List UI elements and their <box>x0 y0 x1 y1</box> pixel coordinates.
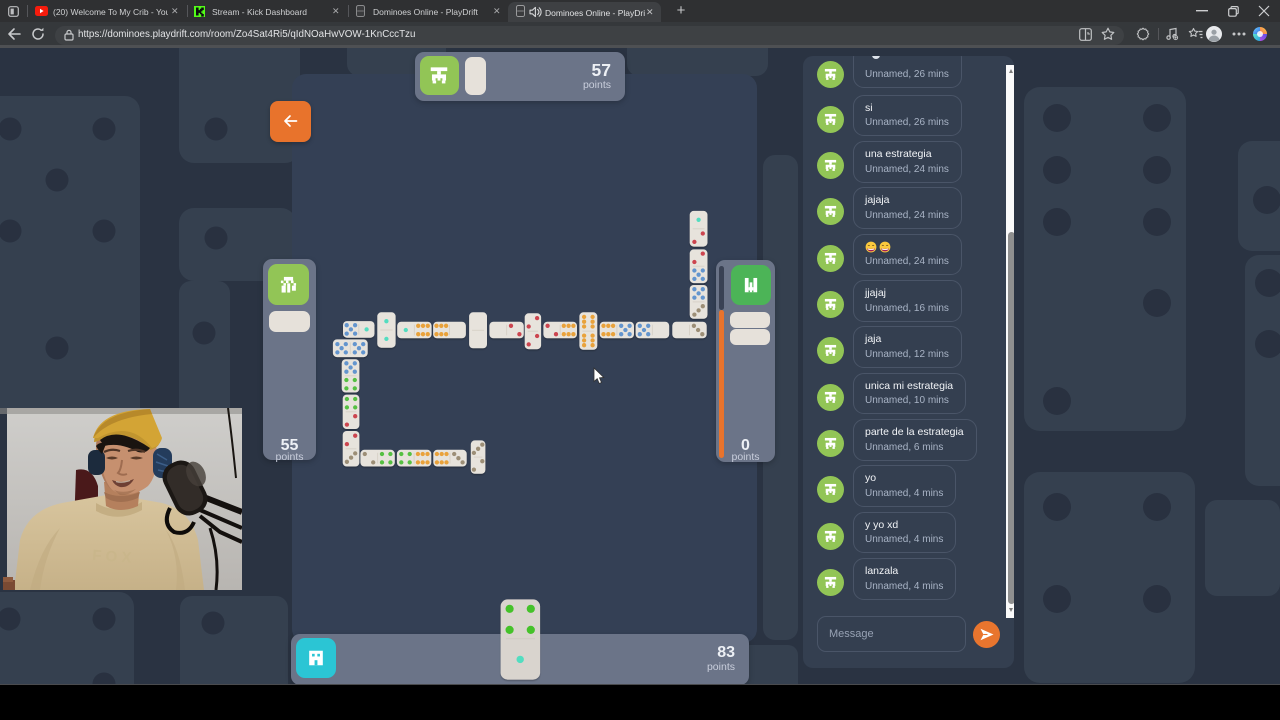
svg-text:F O X: F O X <box>92 547 132 567</box>
